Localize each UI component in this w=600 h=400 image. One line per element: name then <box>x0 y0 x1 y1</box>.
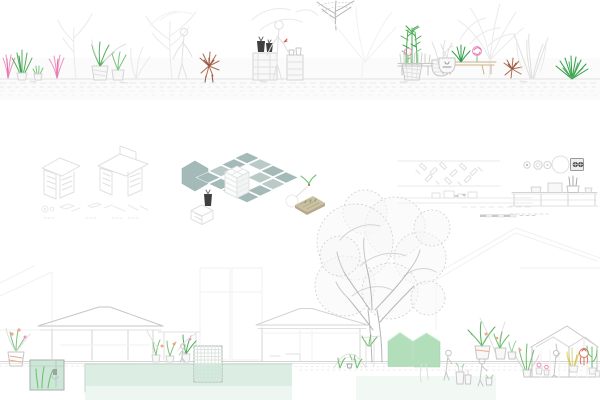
iso-cabinet-a <box>42 158 80 199</box>
presentation-board <box>0 0 600 400</box>
dark-pot-icon <box>204 190 212 206</box>
tan-seed-tray <box>295 196 325 215</box>
pink-pot-plants <box>536 363 549 375</box>
faint-foliage-scribble <box>252 8 318 30</box>
peach-potted-plant <box>6 328 30 366</box>
sketch-pot <box>439 43 455 73</box>
control-square <box>571 159 584 171</box>
board-drawing <box>0 0 600 400</box>
bottom-section <box>0 190 600 400</box>
ghost-cube <box>191 205 213 225</box>
lattice-cube <box>225 166 249 198</box>
interior-bench <box>270 354 300 361</box>
green-cactus <box>587 346 597 374</box>
paving-pattern-strip <box>398 161 500 186</box>
large-mint-pool <box>85 364 292 386</box>
green-sheds <box>388 333 440 368</box>
counter-elevation <box>510 176 598 214</box>
greenhouse-with-plants <box>515 326 600 377</box>
tank-water <box>195 364 221 381</box>
large-mint-pool-fade <box>85 386 292 400</box>
sprout-icon <box>296 175 316 197</box>
exploded-parts-row <box>42 203 148 218</box>
lattice-water-tank <box>194 346 222 382</box>
faint-foliage <box>460 18 514 46</box>
plant-outside-greenhouse <box>515 344 539 377</box>
scale-bar <box>480 215 536 218</box>
ground-plants <box>147 330 196 362</box>
planted-water-tank <box>30 360 64 390</box>
pavilion-left <box>38 307 200 360</box>
pavilion-middle <box>256 309 368 362</box>
red-bloom-accent <box>284 39 287 42</box>
plant-shelf-b <box>287 48 303 80</box>
top-plant-elevation <box>0 1 600 100</box>
iso-cabinet-b <box>98 146 148 196</box>
mint-ground-wash <box>356 376 496 400</box>
middle-diagrams <box>42 146 598 225</box>
tank-pump <box>53 369 57 375</box>
potted-plant-group <box>468 318 516 359</box>
burner-circles <box>524 156 569 173</box>
